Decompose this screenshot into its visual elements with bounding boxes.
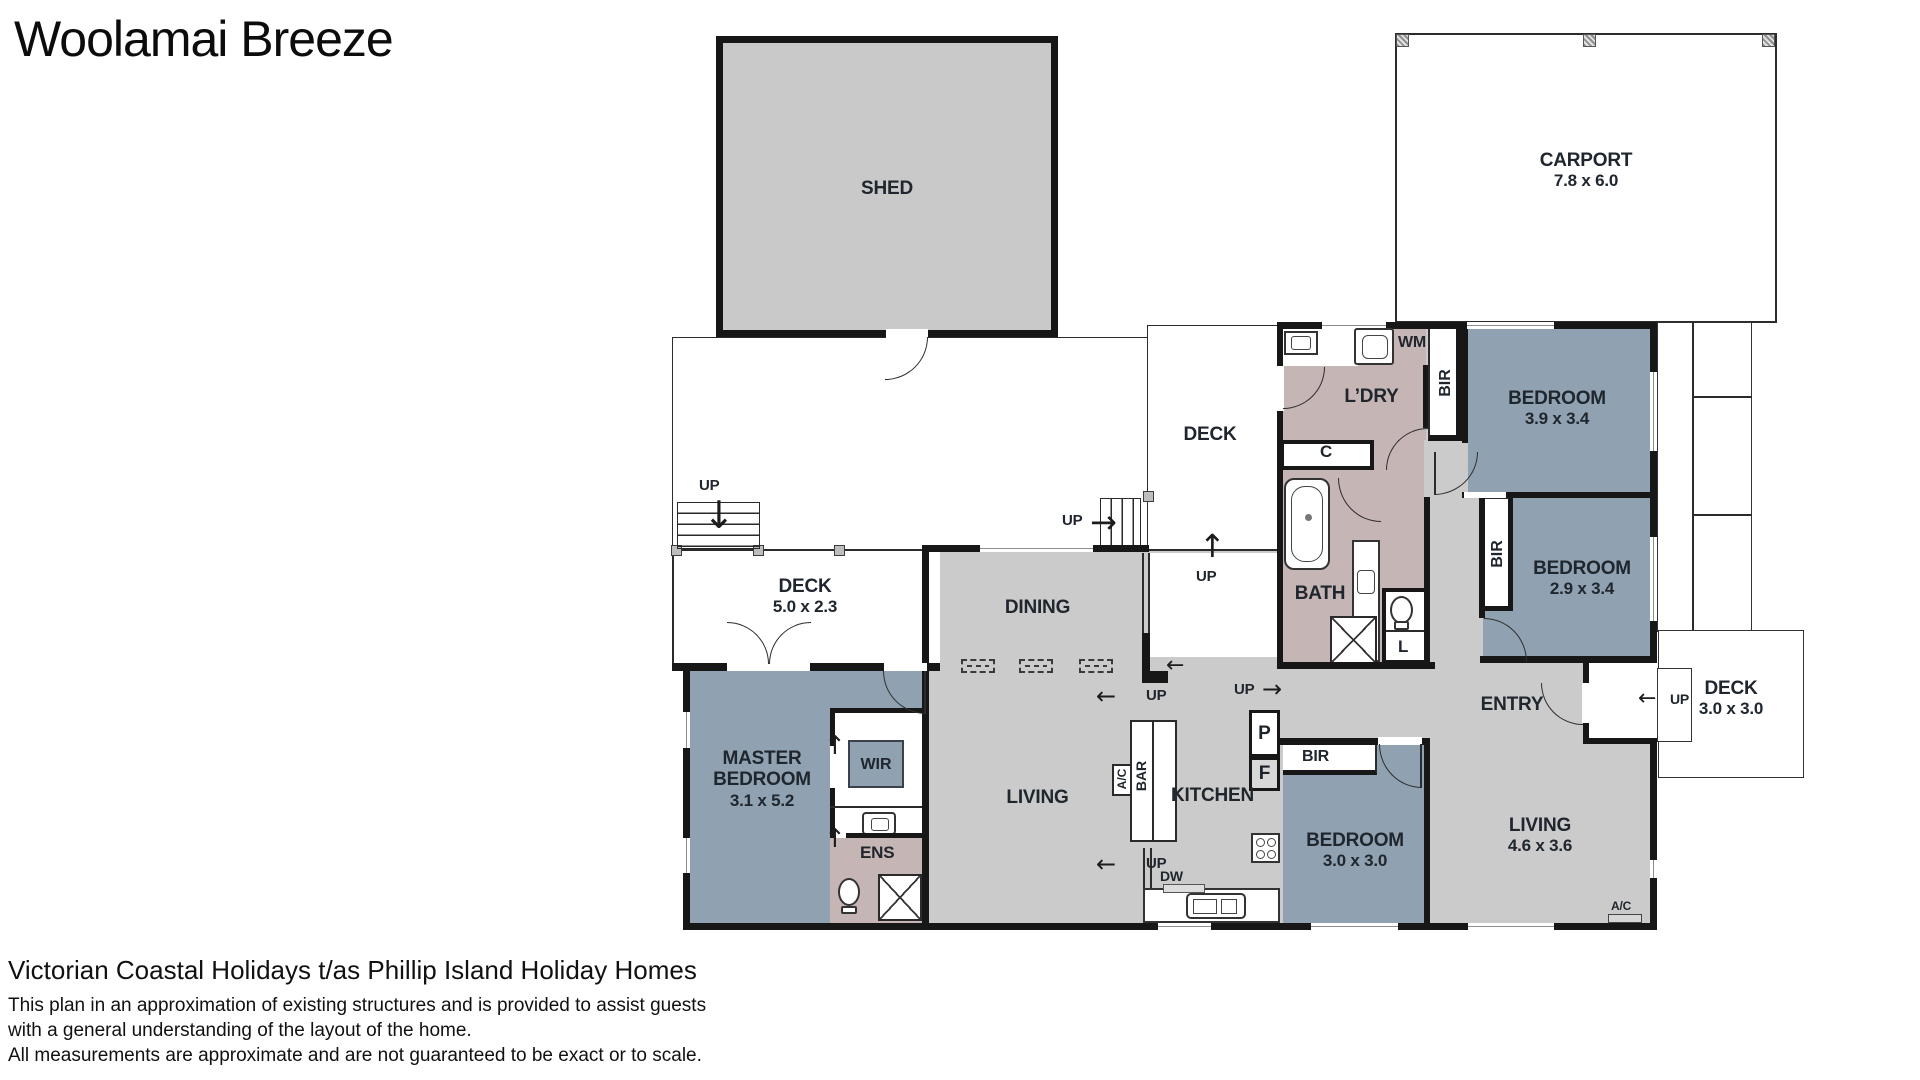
cooktop-icon: [1251, 833, 1280, 863]
footer-line: This plan in an approximation of existin…: [8, 995, 706, 1017]
wall-bath-right: [1424, 497, 1430, 665]
linen-label: L: [1398, 637, 1408, 657]
shower-icon: [878, 874, 922, 921]
bir2-label: BIR: [1489, 524, 1505, 584]
step-line: [1148, 553, 1150, 633]
window: [1650, 860, 1657, 878]
arrow-up-icon: ↑: [1199, 530, 1226, 562]
laundry-label: L’DRY: [1334, 386, 1409, 407]
entry-label: ENTRY: [1468, 694, 1556, 715]
room-dims: 5.0 x 2.3: [735, 597, 875, 616]
shower-icon: [1330, 616, 1377, 664]
basin-icon: [1357, 570, 1375, 594]
kitchen-label: KITCHEN: [1165, 785, 1260, 806]
shed-label: SHED: [820, 178, 954, 199]
ac-bar-label: A/C: [1115, 749, 1129, 809]
room-name: KITCHEN: [1165, 785, 1260, 806]
room-name: BEDROOM: [1487, 388, 1627, 409]
footer-line: All measurements are approximate and are…: [8, 1045, 702, 1067]
divider-line: [1386, 630, 1424, 632]
bir3-box: [1283, 745, 1377, 775]
arrow-right-icon: →: [1090, 506, 1117, 538]
door-leaf: [1434, 452, 1436, 495]
walkway-line: [1692, 514, 1752, 516]
door-leaf: [1420, 744, 1422, 788]
window: [1158, 923, 1211, 930]
toilet-base: [1394, 621, 1409, 630]
room-name: CARPORT: [1506, 150, 1666, 171]
room-name: LIVING: [990, 787, 1085, 808]
bir1-label: BIR: [1437, 353, 1453, 413]
pantry-box: P: [1249, 710, 1280, 757]
carport-post: [1583, 34, 1596, 47]
wir-label: WIR: [846, 756, 906, 772]
door-gap: [1582, 683, 1590, 723]
room-dims: 3.1 x 5.2: [702, 791, 822, 810]
window: [683, 712, 690, 748]
arrow-left-icon: ←: [1638, 688, 1656, 710]
arrow-up-icon: ↑: [824, 826, 846, 852]
room-dims: 2.9 x 3.4: [1512, 579, 1652, 598]
room-dims: 3.9 x 3.4: [1487, 409, 1627, 428]
dash-marker: [1019, 659, 1053, 673]
bar-divider: [1152, 722, 1154, 840]
dash-marker: [1079, 659, 1113, 673]
ens-wall: [846, 833, 922, 838]
wall-master-left: [683, 665, 690, 930]
footer-line: with a general understanding of the layo…: [8, 1020, 472, 1042]
door-gap: [727, 663, 810, 671]
up-label: UP: [1670, 691, 1689, 707]
divider-line: [830, 806, 922, 808]
walkway-line: [1692, 322, 1694, 632]
deck-top-label: DECK: [1175, 424, 1245, 445]
window: [1311, 923, 1398, 930]
stairs-left-up-label: UP: [697, 477, 721, 494]
bedroom2-label: BEDROOM 2.9 x 3.4: [1512, 558, 1652, 598]
up-label: UP: [1146, 687, 1166, 704]
wm-label: WM: [1398, 334, 1426, 352]
bedroom3-label: BEDROOM 3.0 x 3.0: [1285, 830, 1425, 870]
room-name: L’DRY: [1334, 386, 1409, 407]
wall-kitchen-stub-foot: [1146, 671, 1168, 683]
door-leaf: [924, 671, 926, 714]
page-title: Woolamai Breeze: [14, 10, 393, 68]
arrow-left-icon: ←: [1166, 655, 1184, 677]
up-label: UP: [1234, 681, 1254, 698]
dishwasher-icon: [1163, 884, 1205, 893]
room-name: SHED: [820, 178, 954, 199]
room-name: DECK: [735, 576, 875, 597]
toilet-base: [841, 906, 857, 914]
wall-living-left: [922, 551, 929, 930]
room-name: DINING: [990, 597, 1085, 618]
kitchen-sink-icon: [1186, 893, 1246, 919]
carport-post: [1762, 34, 1775, 47]
window: [683, 838, 690, 873]
toilet-icon: [1390, 596, 1413, 624]
room-dims: 3.0 x 3.0: [1285, 851, 1425, 870]
arrow-left-icon: ←: [1096, 852, 1116, 876]
bedroom1-label: BEDROOM 3.9 x 3.4: [1487, 388, 1627, 428]
wall-bath-bottom: [1277, 662, 1435, 669]
dash-marker: [961, 659, 995, 673]
walkway-line: [1692, 396, 1752, 398]
washing-machine-icon: [1354, 328, 1394, 365]
toilet-icon: [838, 878, 860, 906]
bath-label: BATH: [1284, 583, 1356, 604]
step-line: [1143, 848, 1145, 888]
window: [1468, 923, 1554, 930]
ens-label: ENS: [860, 843, 894, 863]
living-label: LIVING: [990, 787, 1085, 808]
dw-label: DW: [1160, 868, 1183, 884]
room-name: ENTRY: [1468, 694, 1556, 715]
room-name: MASTER BEDROOM: [702, 748, 822, 791]
room-dims: 4.6 x 3.6: [1455, 836, 1625, 855]
room-name: DECK: [1175, 424, 1245, 445]
bir3-label: BIR: [1302, 748, 1329, 766]
room-name: BATH: [1284, 583, 1356, 604]
vanity-icon: [862, 812, 896, 835]
cupboard-label: C: [1320, 442, 1332, 462]
wall-bed2-left: [1479, 497, 1485, 618]
living2-label: LIVING 4.6 x 3.6: [1455, 815, 1625, 855]
room-name: LIVING: [1455, 815, 1625, 836]
deck-post: [1143, 491, 1154, 502]
room-name: BEDROOM: [1285, 830, 1425, 851]
wall-laundry-right: [1423, 365, 1428, 428]
bathtub-icon: [1284, 478, 1330, 570]
window: [1650, 372, 1657, 451]
arrow-down-icon: ↓: [703, 496, 735, 534]
carport-post: [1396, 34, 1409, 47]
window: [1467, 322, 1554, 329]
carport-label: CARPORT 7.8 x 6.0: [1506, 150, 1666, 190]
door-gap: [884, 663, 927, 671]
window: [980, 545, 1093, 552]
bar-label: BAR: [1133, 746, 1149, 806]
dining-label: DINING: [990, 597, 1085, 618]
step-line: [1142, 553, 1144, 633]
deck-post: [834, 545, 845, 556]
door-gap: [1464, 492, 1506, 498]
room-dims: 7.8 x 6.0: [1506, 171, 1666, 190]
laundry-sink-icon: [1284, 331, 1318, 355]
arrow-right-icon: →: [1262, 677, 1282, 701]
floor-plan-page: Woolamai Breeze UP ↓ UP → SHED CARPORT 7…: [0, 0, 1920, 1080]
master-label: MASTER BEDROOM 3.1 x 5.2: [702, 748, 822, 810]
wall-bed1-left: [1462, 325, 1468, 443]
arrow-left-icon: ←: [1096, 684, 1116, 708]
stairs-right-up-label: UP: [1062, 512, 1082, 529]
ac-label: A/C: [1611, 899, 1631, 913]
room-name: BEDROOM: [1512, 558, 1652, 579]
deck-5x2-label: DECK 5.0 x 2.3: [735, 576, 875, 616]
up-label: UP: [1196, 568, 1216, 585]
side-walkway: [1657, 322, 1752, 632]
footer-company: Victorian Coastal Holidays t/as Phillip …: [8, 955, 697, 986]
ac-unit-icon: [1608, 914, 1642, 923]
arrow-up-icon: ↑: [824, 733, 846, 759]
